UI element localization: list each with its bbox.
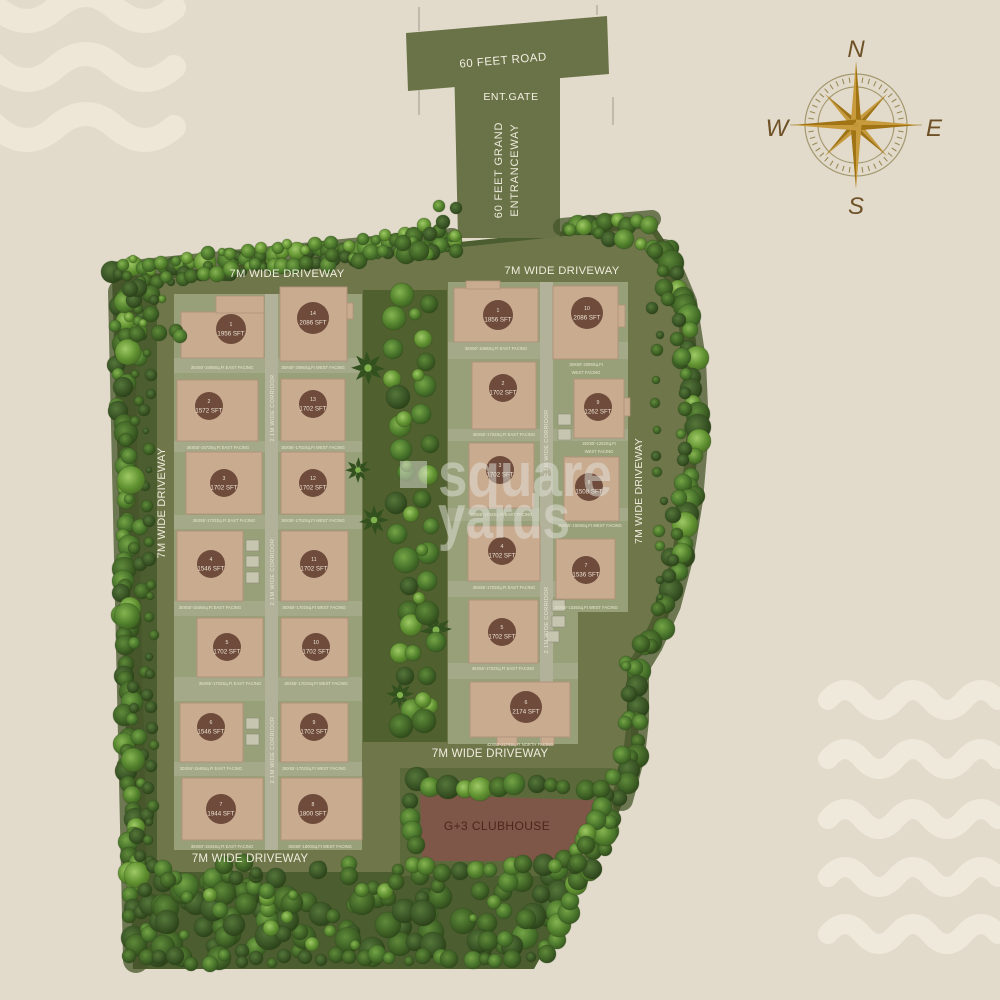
svg-text:2.1M WIDE CORRIDOR: 2.1M WIDE CORRIDOR: [270, 539, 276, 606]
svg-text:14: 14: [310, 311, 316, 317]
svg-text:36X55'-1702Sq.Ft WEST FACING: 36X55'-1702Sq.Ft WEST FACING: [282, 766, 346, 771]
svg-text:30X55'-1536Sq.Ft WEST FACING: 30X55'-1536Sq.Ft WEST FACING: [554, 605, 618, 610]
svg-text:36X55'-1702Sq.Ft WEST FACING: 36X55'-1702Sq.Ft WEST FACING: [281, 518, 345, 523]
svg-text:2: 2: [502, 381, 505, 387]
svg-text:1944 SFT: 1944 SFT: [207, 811, 234, 818]
svg-text:36X55'-1702Sq.Ft WEST FACING: 36X55'-1702Sq.Ft WEST FACING: [282, 605, 346, 610]
svg-text:8: 8: [312, 802, 315, 808]
svg-text:36X55'-1702Sq.Ft WEST FACING: 36X55'-1702Sq.Ft WEST FACING: [284, 681, 348, 686]
svg-text:1546 SFT: 1546 SFT: [197, 566, 224, 573]
svg-text:1: 1: [230, 322, 233, 328]
svg-text:7: 7: [220, 802, 223, 808]
svg-text:W: W: [766, 115, 791, 142]
svg-text:9: 9: [597, 400, 600, 406]
svg-text:36X55'-1702Sq.Ft EAST FACING: 36X55'-1702Sq.Ft EAST FACING: [473, 432, 535, 437]
svg-text:36X55'-1702Sq.Ft EAST FACING: 36X55'-1702Sq.Ft EAST FACING: [193, 518, 255, 523]
svg-text:1546 SFT: 1546 SFT: [197, 729, 224, 736]
svg-text:E: E: [926, 115, 943, 142]
svg-text:7M WIDE DRIVEWAY: 7M WIDE DRIVEWAY: [504, 265, 619, 277]
svg-text:G+3 CLUBHOUSE: G+3 CLUBHOUSE: [444, 819, 550, 833]
svg-text:7: 7: [585, 563, 588, 569]
svg-text:36X55'-1702Sq.Ft EAST FACING: 36X55'-1702Sq.Ft EAST FACING: [199, 681, 261, 686]
svg-text:2086 SFT: 2086 SFT: [299, 320, 326, 327]
svg-text:S: S: [848, 193, 864, 220]
svg-text:36X60'-1944Sq.Ft EAST FACING: 36X60'-1944Sq.Ft EAST FACING: [191, 844, 253, 849]
svg-text:2.1M WIDE CORRIDOR: 2.1M WIDE CORRIDOR: [270, 717, 276, 784]
svg-text:1702 SFT: 1702 SFT: [213, 649, 240, 656]
svg-text:12: 12: [310, 476, 316, 482]
svg-text:1536 SFT: 1536 SFT: [572, 572, 599, 579]
svg-text:2.1M WIDE CORRIDOR: 2.1M WIDE CORRIDOR: [270, 375, 276, 442]
svg-text:1702 SFT: 1702 SFT: [299, 485, 326, 492]
svg-text:7M WIDE DRIVEWAY: 7M WIDE DRIVEWAY: [156, 447, 168, 558]
svg-text:36X60'-1800Sq.Ft WEST FACING: 36X60'-1800Sq.Ft WEST FACING: [288, 844, 352, 849]
svg-text:38X60'-2086Sq.Ft WEST FACING: 38X60'-2086Sq.Ft WEST FACING: [281, 365, 345, 370]
svg-text:1702 SFT: 1702 SFT: [300, 729, 327, 736]
svg-text:2.1M WIDE CORRIDOR: 2.1M WIDE CORRIDOR: [544, 587, 550, 654]
svg-text:10: 10: [313, 640, 319, 646]
svg-text:4: 4: [210, 557, 213, 563]
svg-text:1856 SFT: 1856 SFT: [484, 317, 511, 324]
svg-text:11: 11: [311, 557, 316, 563]
svg-text:1702 SFT: 1702 SFT: [210, 485, 237, 492]
svg-text:36X60'-1956Sq.Ft EAST FACING: 36X60'-1956Sq.Ft EAST FACING: [191, 365, 253, 370]
svg-text:1702 SFT: 1702 SFT: [488, 553, 515, 560]
svg-text:yards: yards: [438, 483, 570, 552]
svg-text:N: N: [847, 36, 865, 63]
svg-text:1702 SFT: 1702 SFT: [300, 566, 327, 573]
svg-text:2086 SFT: 2086 SFT: [573, 315, 600, 322]
svg-text:1702 SFT: 1702 SFT: [489, 390, 516, 397]
svg-text:30X55'-1546Sq.Ft EAST FACING: 30X55'-1546Sq.Ft EAST FACING: [179, 605, 241, 610]
svg-text:6: 6: [525, 700, 528, 706]
svg-text:60 FEET GRAND: 60 FEET GRAND: [493, 122, 505, 218]
svg-text:5: 5: [226, 640, 229, 646]
svg-text:1800 SFT: 1800 SFT: [299, 811, 326, 818]
svg-text:36X55'-1572Sq.Ft EAST FACING: 36X55'-1572Sq.Ft EAST FACING: [187, 445, 249, 450]
svg-text:36X60'-1856Sq.Ft EAST FACING: 36X60'-1856Sq.Ft EAST FACING: [465, 346, 527, 351]
svg-text:1: 1: [497, 308, 500, 314]
svg-text:13: 13: [310, 397, 316, 403]
svg-text:1702 SFT: 1702 SFT: [488, 634, 515, 641]
svg-text:1702 SFT: 1702 SFT: [302, 649, 329, 656]
svg-text:5: 5: [501, 625, 504, 631]
svg-text:9: 9: [313, 720, 316, 726]
svg-text:7M WIDE DRIVEWAY: 7M WIDE DRIVEWAY: [229, 268, 344, 280]
svg-text:38X60'-2086Sq.Ft: 38X60'-2086Sq.Ft: [569, 362, 603, 367]
svg-text:36X55'-1702Sq.Ft WEST FACING: 36X55'-1702Sq.Ft WEST FACING: [281, 445, 345, 450]
svg-text:ENTRANCEWAY: ENTRANCEWAY: [509, 123, 521, 216]
svg-text:2: 2: [208, 399, 211, 405]
svg-text:1572 SFT: 1572 SFT: [195, 408, 222, 415]
svg-text:7M WIDE DRIVEWAY: 7M WIDE DRIVEWAY: [192, 852, 309, 865]
svg-text:36X55'-1702Sq.Ft EAST FACING: 36X55'-1702Sq.Ft EAST FACING: [472, 666, 534, 671]
svg-text:30X55'-1546Sq.Ft EAST FACING: 30X55'-1546Sq.Ft EAST FACING: [180, 766, 242, 771]
svg-text:1262 SFT: 1262 SFT: [584, 409, 611, 416]
svg-text:1702 SFT: 1702 SFT: [299, 406, 326, 413]
svg-text:7M WIDE DRIVEWAY: 7M WIDE DRIVEWAY: [633, 438, 645, 544]
svg-text:7M WIDE DRIVEWAY: 7M WIDE DRIVEWAY: [432, 747, 549, 760]
svg-text:10: 10: [584, 306, 590, 312]
svg-text:2174 SFT: 2174 SFT: [512, 709, 539, 716]
svg-text:36X55'-1702Sq.Ft EAST FACING: 36X55'-1702Sq.Ft EAST FACING: [473, 585, 535, 590]
svg-text:3: 3: [223, 476, 226, 482]
svg-text:WEST FACING: WEST FACING: [572, 370, 601, 375]
svg-text:1956 SFT: 1956 SFT: [217, 331, 244, 338]
svg-text:ENT.GATE: ENT.GATE: [483, 91, 538, 103]
svg-text:6: 6: [210, 720, 213, 726]
